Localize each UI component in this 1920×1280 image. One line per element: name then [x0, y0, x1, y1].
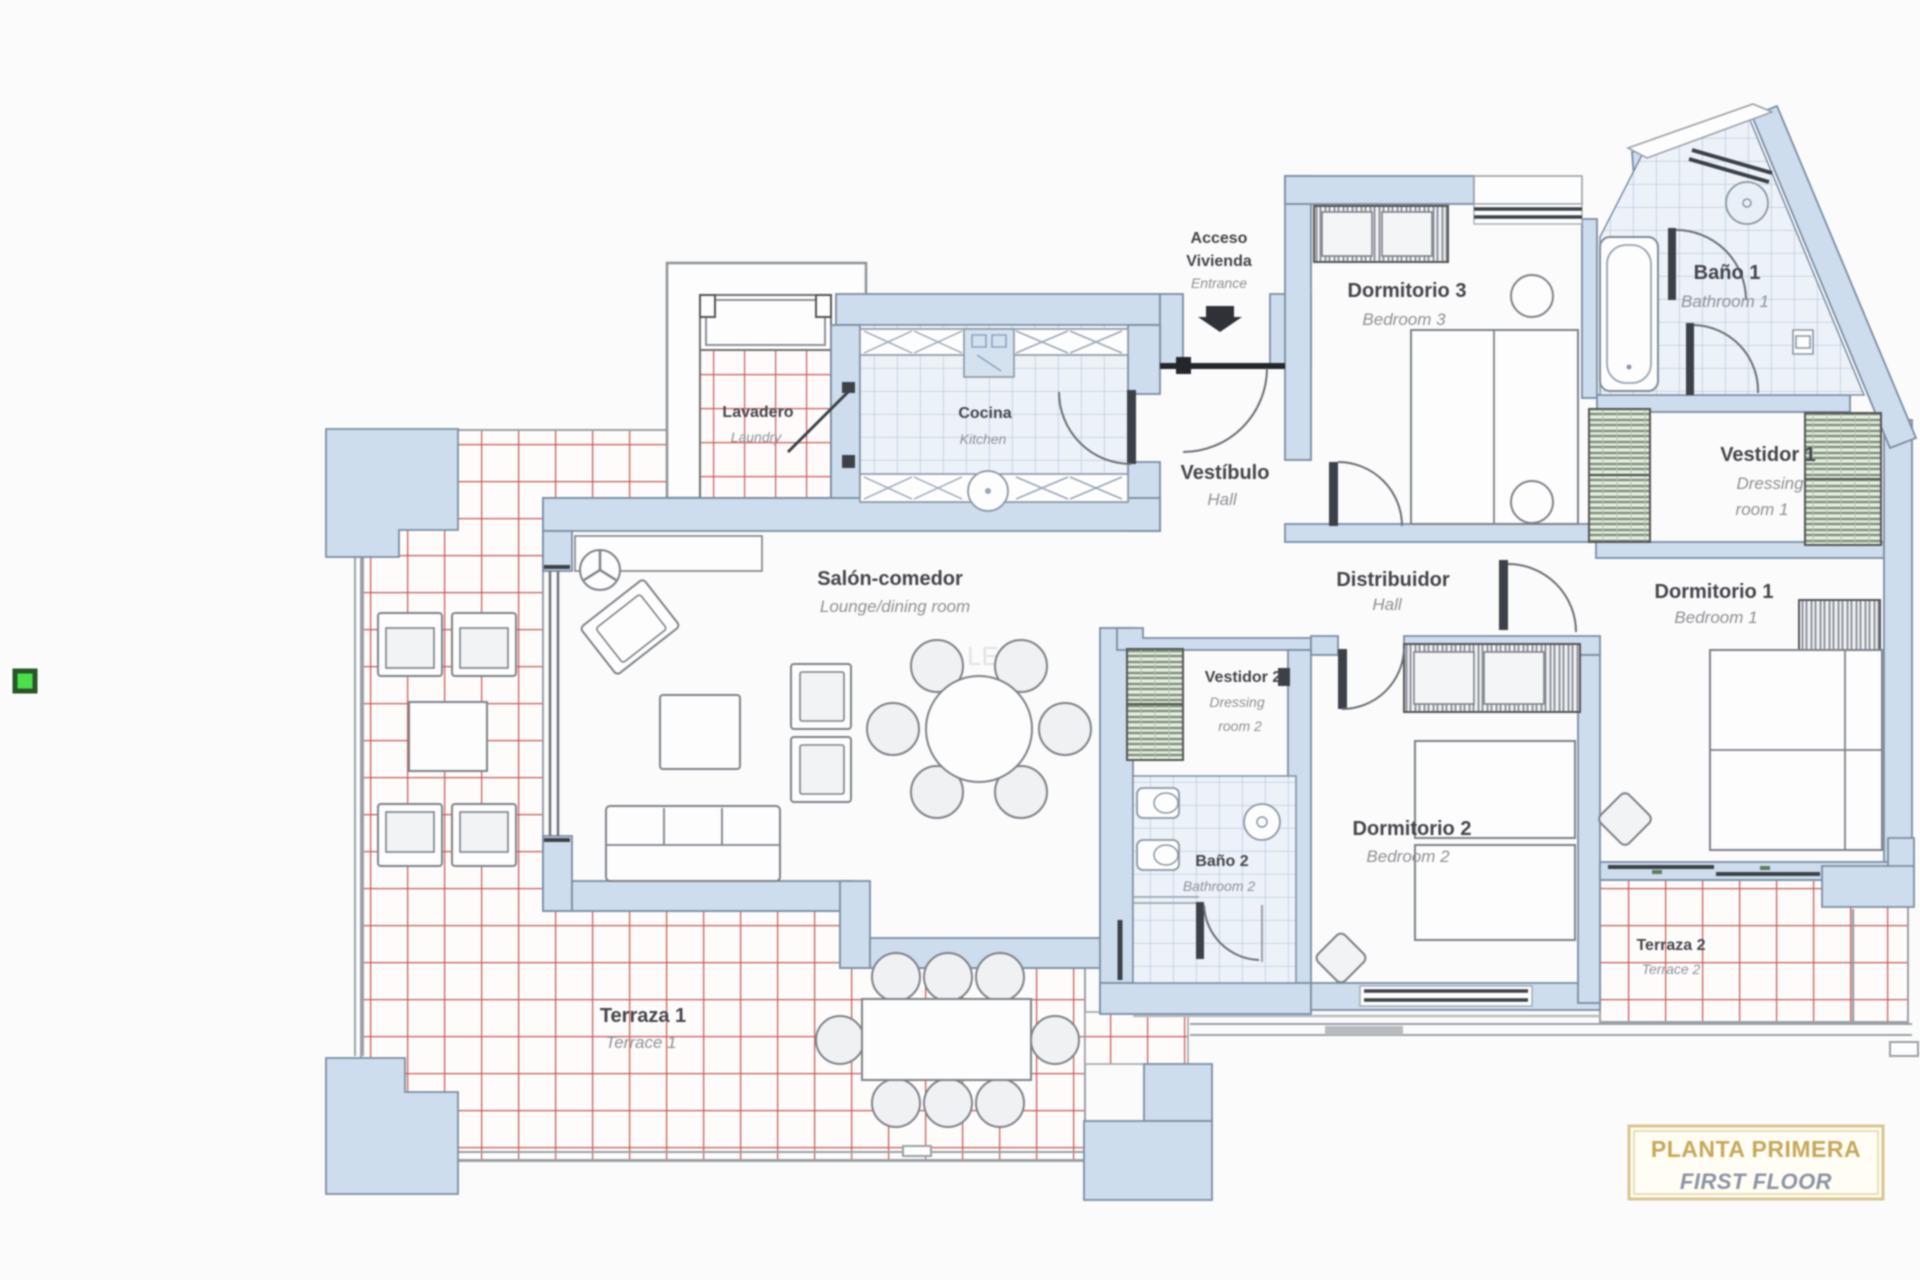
svg-text:Hall: Hall [1207, 490, 1238, 509]
svg-text:Bathroom 1: Bathroom 1 [1681, 292, 1769, 311]
svg-text:Hall: Hall [1372, 595, 1403, 614]
svg-text:Dressing: Dressing [1209, 694, 1264, 710]
svg-text:FIRST FLOOR: FIRST FLOOR [1680, 1169, 1832, 1194]
svg-text:Dormitorio 3: Dormitorio 3 [1348, 280, 1467, 302]
svg-text:Terrace 1: Terrace 1 [605, 1033, 676, 1052]
svg-text:room 2: room 2 [1218, 718, 1262, 734]
svg-text:Terraza 2: Terraza 2 [1636, 937, 1705, 954]
svg-text:Terrace 2: Terrace 2 [1642, 961, 1701, 977]
svg-text:Bedroom 3: Bedroom 3 [1362, 310, 1446, 329]
svg-text:Acceso: Acceso [1191, 230, 1248, 247]
svg-text:Terraza 1: Terraza 1 [600, 1005, 686, 1027]
svg-text:PLANTA PRIMERA: PLANTA PRIMERA [1651, 1136, 1861, 1162]
svg-text:Entrance: Entrance [1191, 275, 1247, 291]
svg-text:Vivienda: Vivienda [1186, 253, 1252, 270]
svg-text:Cocina: Cocina [958, 405, 1011, 422]
svg-text:Laundry: Laundry [731, 429, 783, 445]
svg-text:Bedroom 1: Bedroom 1 [1674, 608, 1757, 627]
svg-text:Bathroom 2: Bathroom 2 [1183, 878, 1256, 894]
svg-text:Dressing: Dressing [1736, 474, 1804, 493]
svg-text:Vestidor 1: Vestidor 1 [1720, 444, 1816, 466]
svg-text:Baño 1: Baño 1 [1694, 262, 1761, 284]
svg-text:Salón-comedor: Salón-comedor [817, 568, 963, 590]
svg-text:Dormitorio 2: Dormitorio 2 [1353, 818, 1472, 840]
svg-text:Dormitorio 1: Dormitorio 1 [1655, 581, 1774, 603]
svg-text:Lounge/dining room: Lounge/dining room [820, 597, 970, 616]
svg-text:Bedroom 2: Bedroom 2 [1366, 847, 1450, 866]
svg-text:Distribuidor: Distribuidor [1336, 569, 1450, 591]
svg-text:Kitchen: Kitchen [960, 431, 1007, 447]
svg-text:Baño 2: Baño 2 [1195, 853, 1248, 870]
svg-text:room 1: room 1 [1736, 500, 1789, 519]
svg-text:Vestidor 2: Vestidor 2 [1205, 669, 1282, 686]
svg-text:Vestíbulo: Vestíbulo [1181, 462, 1270, 484]
svg-text:Lavadero: Lavadero [722, 404, 793, 421]
